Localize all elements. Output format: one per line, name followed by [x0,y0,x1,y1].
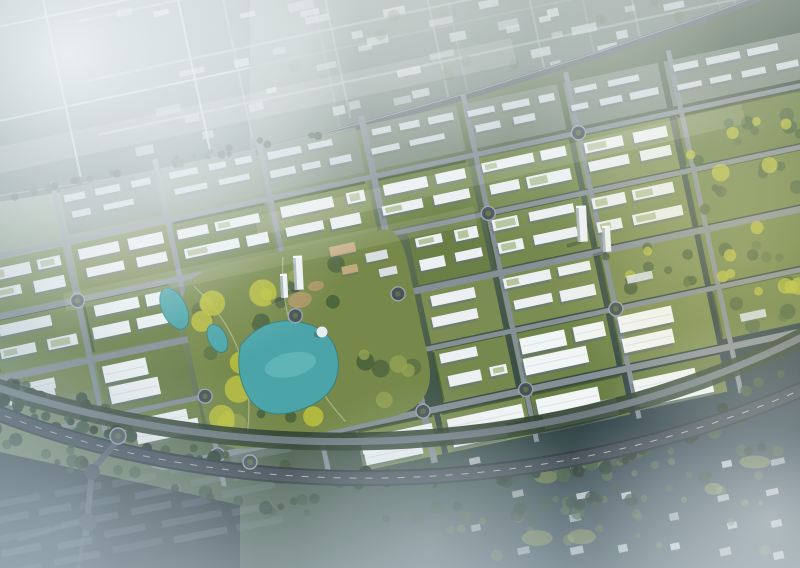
masterplan-rendering-canvas [0,0,800,568]
aerial-city-rendering [0,0,800,568]
dome-building [317,327,328,338]
